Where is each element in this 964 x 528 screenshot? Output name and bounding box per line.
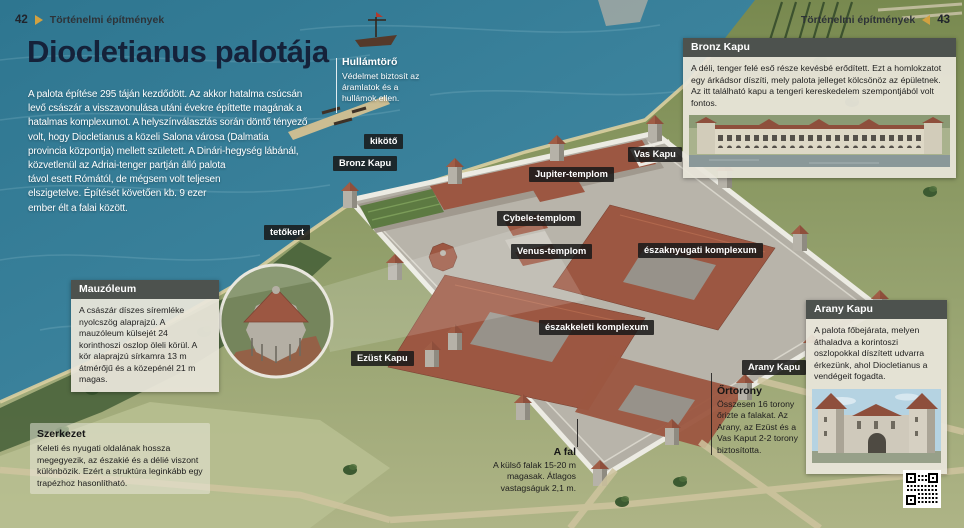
page-header-left: 42 Történelmi építmények (15, 14, 164, 26)
info-box-title: Bronz Kapu (683, 38, 956, 57)
info-box-title: Arany Kapu (806, 300, 947, 319)
annotation-title: Szerkezet (37, 428, 203, 440)
map-label-venus-templom: Venus-templom (511, 244, 592, 259)
section-title-right: Történelmi építmények (801, 14, 915, 26)
qr-code (903, 470, 941, 508)
callout-line-a-fal (577, 419, 578, 447)
intro-wrap-spacer (308, 88, 310, 160)
page-number-left: 42 (15, 14, 28, 26)
callout-line-ortorony (711, 373, 712, 455)
annotation-a-fal: A fal A külső falak 15-20 m magasak. Átl… (478, 446, 576, 494)
info-box-mauzoleum: Mauzóleum A császár díszes síremléke nyo… (71, 280, 219, 392)
map-label-cybele-templom: Cybele-templom (497, 211, 581, 226)
map-label-kikoto: kikötő (364, 134, 403, 149)
info-box-arany-kapu: Arany Kapu A palota főbejárata, melyen á… (806, 300, 947, 474)
intro-paragraph: A palota építése 295 táján kezdődött. Az… (28, 88, 310, 298)
page-number-right: 43 (937, 14, 950, 26)
info-box-title: Mauzóleum (71, 280, 219, 299)
arrow-right-icon (35, 15, 43, 25)
info-box-body: A déli, tenger felé eső része kevésbé er… (683, 57, 956, 115)
annotation-hullamtoro: Hullámtörő Védelmet biztosít az áramlato… (342, 56, 422, 103)
page-title: Diocletianus palotája (27, 34, 329, 70)
info-box-image (683, 115, 956, 178)
info-box-image (806, 389, 947, 474)
section-title-left: Történelmi építmények (50, 14, 164, 26)
info-box-body: A palota főbejárata, melyen áthaladva a … (806, 319, 947, 389)
annotation-body: Keleti és nyugati oldalának hossza megeg… (37, 443, 203, 489)
annotation-title: Őrtorony (717, 385, 801, 397)
map-label-arany-kapu: Arany Kapu (742, 360, 806, 375)
bronz-kapu-facade-image (689, 115, 950, 167)
map-label-tetokert: tetőkert (264, 225, 310, 240)
book-spread: 42 Történelmi építmények Történelmi épít… (0, 0, 964, 528)
map-label-bronz-kapu: Bronz Kapu (333, 156, 397, 171)
annotation-body: Összesen 16 torony őrizte a falakat. Az … (717, 399, 801, 456)
info-box-bronz-kapu: Bronz Kapu A déli, tenger felé eső része… (683, 38, 956, 178)
annotation-ortorony: Őrtorony Összesen 16 torony őrizte a fal… (717, 385, 801, 456)
annotation-body: Védelmet biztosít az áramlatok és a hull… (342, 71, 422, 103)
annotation-szerkezet: Szerkezet Keleti és nyugati oldalának ho… (30, 423, 210, 494)
map-label-vas-kapu: Vas Kapu (628, 147, 682, 162)
annotation-body: A külső falak 15-20 m magasak. Átlagos v… (478, 460, 576, 494)
callout-line-hullamtoro (336, 58, 337, 113)
map-label-eszakkeleti-komplexum: északkeleti komplexum (539, 320, 654, 335)
annotation-title: Hullámtörő (342, 56, 422, 68)
map-label-ezust-kapu: Ezüst Kapu (351, 351, 414, 366)
arrow-left-icon (922, 15, 930, 25)
page-header-right: Történelmi építmények 43 (801, 14, 950, 26)
annotation-title: A fal (478, 446, 576, 458)
arany-kapu-gate-image (812, 389, 941, 463)
info-box-body: A császár díszes síremléke nyolcszög ala… (71, 299, 219, 392)
map-label-jupiter-templom: Jupiter-templom (529, 167, 614, 182)
map-label-eszaknyugati-komplexum: északnyugati komplexum (638, 243, 763, 258)
intro-wrap-spacer (234, 160, 310, 203)
